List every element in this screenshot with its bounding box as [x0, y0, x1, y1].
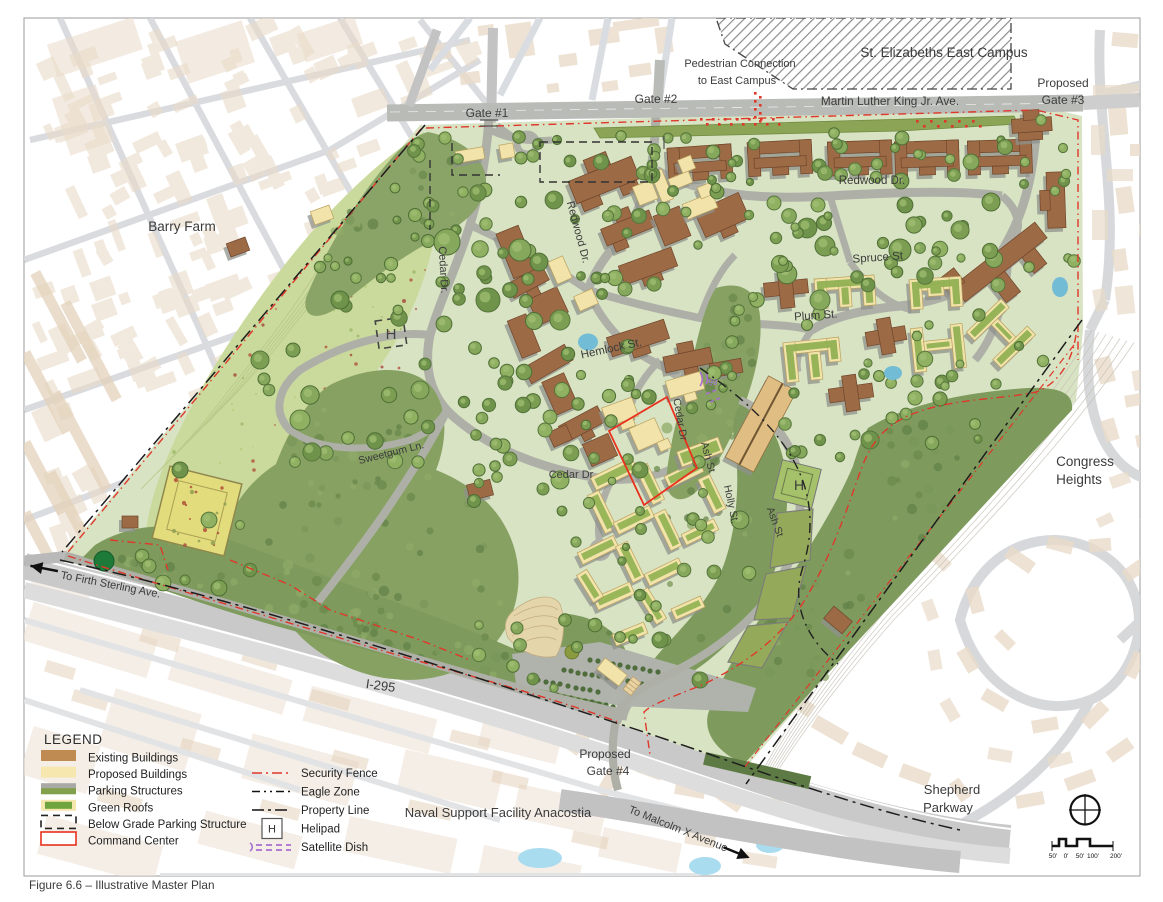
- svg-text:Proposed: Proposed: [1037, 76, 1088, 90]
- svg-text:Naval Support Facility Anacost: Naval Support Facility Anacostia: [405, 805, 592, 820]
- svg-text:Proposed Buildings: Proposed Buildings: [88, 769, 187, 781]
- svg-text:Gate #1: Gate #1: [466, 106, 509, 120]
- svg-text:H: H: [794, 477, 804, 493]
- svg-text:LEGEND: LEGEND: [44, 732, 103, 747]
- svg-text:Gate #2: Gate #2: [635, 92, 678, 106]
- svg-text:Redwood Dr.: Redwood Dr.: [839, 175, 905, 187]
- svg-text:Property Line: Property Line: [301, 805, 369, 817]
- svg-text:H: H: [386, 326, 397, 343]
- svg-text:0': 0': [1064, 853, 1069, 860]
- svg-text:50': 50': [1049, 853, 1057, 860]
- svg-text:Cedar Dr.: Cedar Dr.: [436, 246, 450, 294]
- svg-text:Parking Structures: Parking Structures: [88, 786, 183, 798]
- svg-text:Command Center: Command Center: [88, 836, 179, 848]
- svg-text:Pedestrian Connection: Pedestrian Connection: [684, 58, 795, 70]
- svg-text:Satellite Dish: Satellite Dish: [301, 842, 368, 854]
- svg-text:100': 100': [1087, 853, 1099, 860]
- svg-text:Parkway: Parkway: [923, 800, 973, 815]
- svg-text:Green Roofs: Green Roofs: [88, 802, 153, 814]
- svg-text:Helipad: Helipad: [301, 824, 340, 836]
- svg-text:Shepherd: Shepherd: [924, 782, 980, 797]
- svg-text:Congress: Congress: [1056, 454, 1114, 469]
- svg-text:Barry Farm: Barry Farm: [148, 219, 216, 234]
- svg-text:Below Grade Parking Structure: Below Grade Parking Structure: [88, 819, 247, 831]
- svg-text:Security Fence: Security Fence: [301, 768, 378, 780]
- svg-text:Martin Luther King Jr. Ave.: Martin Luther King Jr. Ave.: [821, 94, 959, 108]
- svg-text:99: 99: [709, 378, 718, 387]
- svg-text:Gate #4: Gate #4: [587, 764, 630, 778]
- svg-text:Figure 6.6 – Illustrative Mast: Figure 6.6 – Illustrative Master Plan: [29, 878, 215, 892]
- svg-text:Heights: Heights: [1056, 472, 1102, 487]
- svg-text:St. Elizabeths East Campus: St. Elizabeths East Campus: [860, 45, 1028, 60]
- svg-text:H: H: [268, 824, 276, 836]
- svg-text:Gate #3: Gate #3: [1042, 93, 1085, 107]
- svg-text:Proposed: Proposed: [579, 747, 630, 761]
- svg-text:200': 200': [1110, 853, 1122, 860]
- svg-text:Cedar Dr: Cedar Dr: [549, 469, 594, 481]
- svg-text:Eagle Zone: Eagle Zone: [301, 787, 360, 799]
- svg-text:to East Campus: to East Campus: [698, 75, 777, 87]
- svg-text:50': 50': [1076, 853, 1084, 860]
- svg-text:Existing Buildings: Existing Buildings: [88, 753, 178, 765]
